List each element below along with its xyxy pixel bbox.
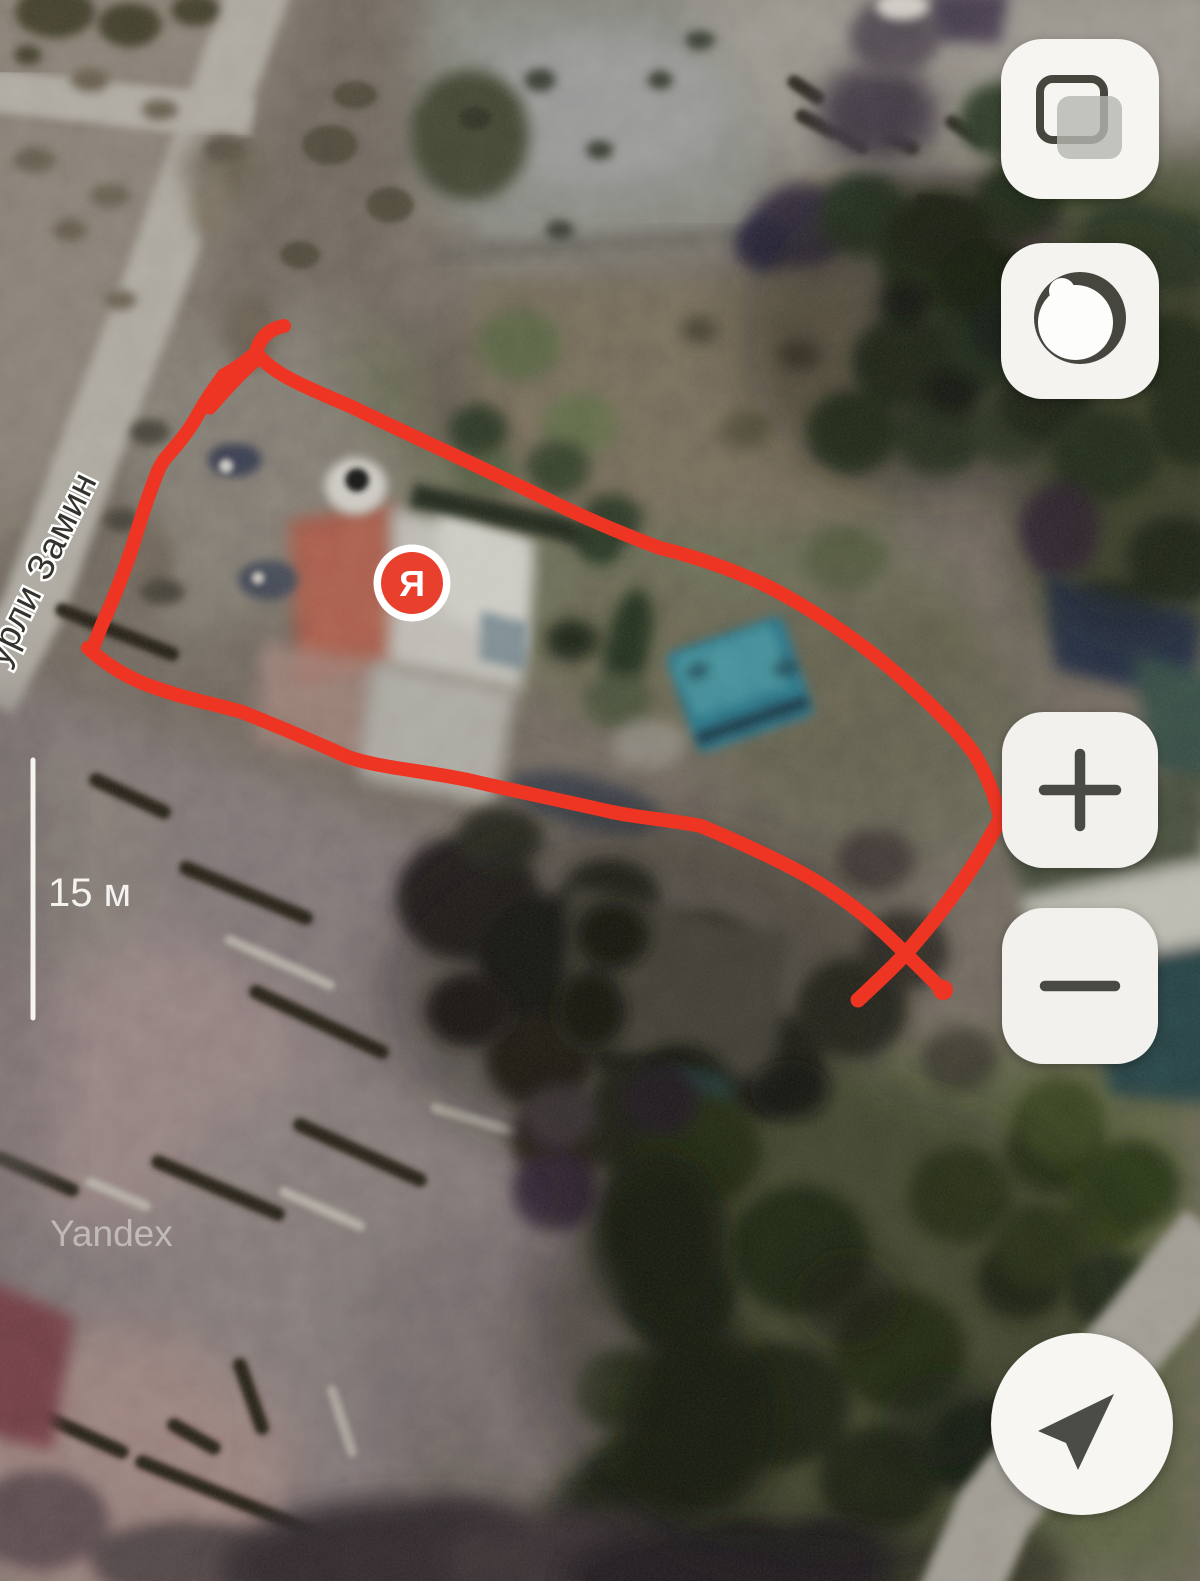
- svg-text:Yandex: Yandex: [50, 1213, 173, 1254]
- svg-text:Я: Я: [399, 563, 425, 604]
- svg-text:15 м: 15 м: [48, 871, 131, 915]
